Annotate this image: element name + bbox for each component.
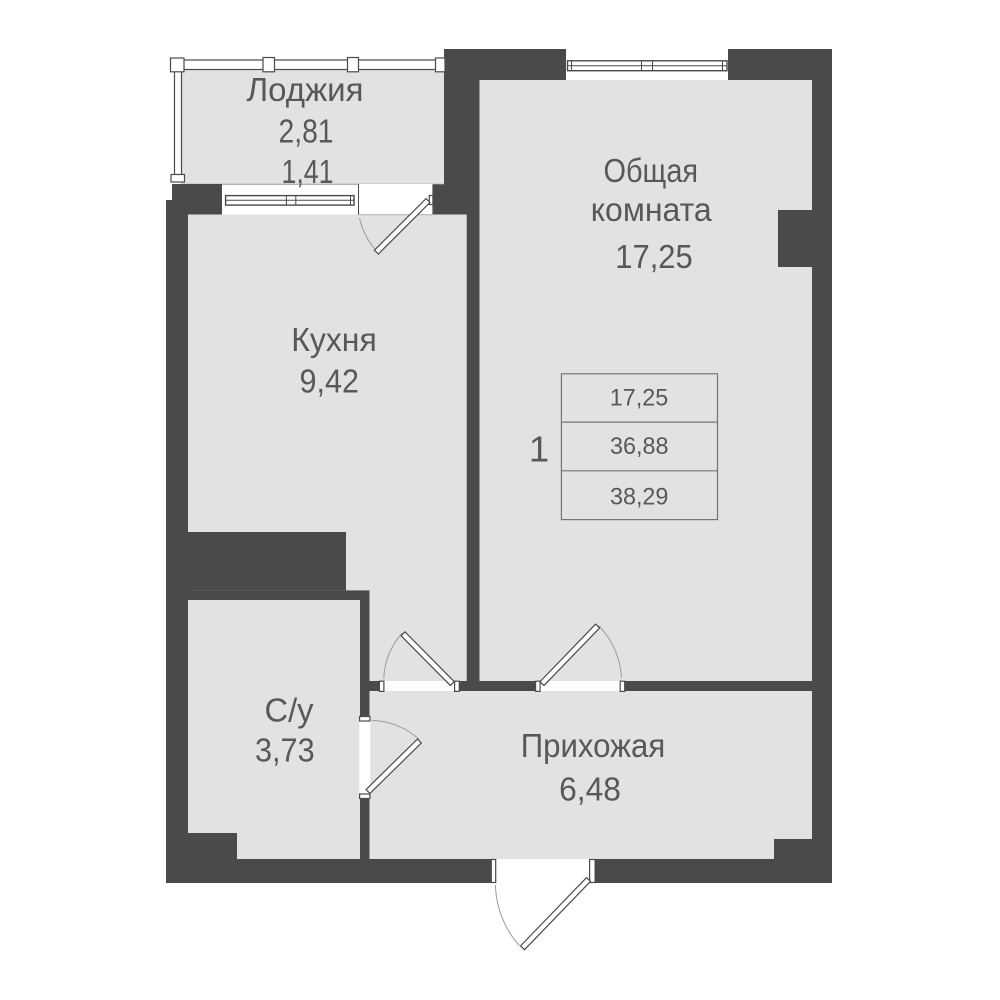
svg-text:6,48: 6,48	[559, 771, 621, 808]
svg-text:17,25: 17,25	[610, 385, 669, 412]
svg-text:комната: комната	[591, 191, 713, 228]
svg-text:1,41: 1,41	[282, 153, 334, 190]
svg-text:Лоджия: Лоджия	[247, 71, 364, 108]
svg-text:36,88: 36,88	[610, 433, 669, 460]
svg-text:1: 1	[529, 429, 549, 470]
svg-text:38,29: 38,29	[610, 484, 669, 511]
svg-text:С/у: С/у	[265, 692, 314, 729]
svg-text:Прихожая: Прихожая	[521, 727, 666, 764]
svg-text:3,73: 3,73	[255, 732, 315, 769]
svg-text:9,42: 9,42	[300, 363, 360, 400]
svg-text:2,81: 2,81	[279, 113, 334, 150]
svg-text:Кухня: Кухня	[291, 321, 377, 358]
svg-text:Общая: Общая	[604, 152, 699, 189]
svg-text:17,25: 17,25	[615, 238, 693, 275]
